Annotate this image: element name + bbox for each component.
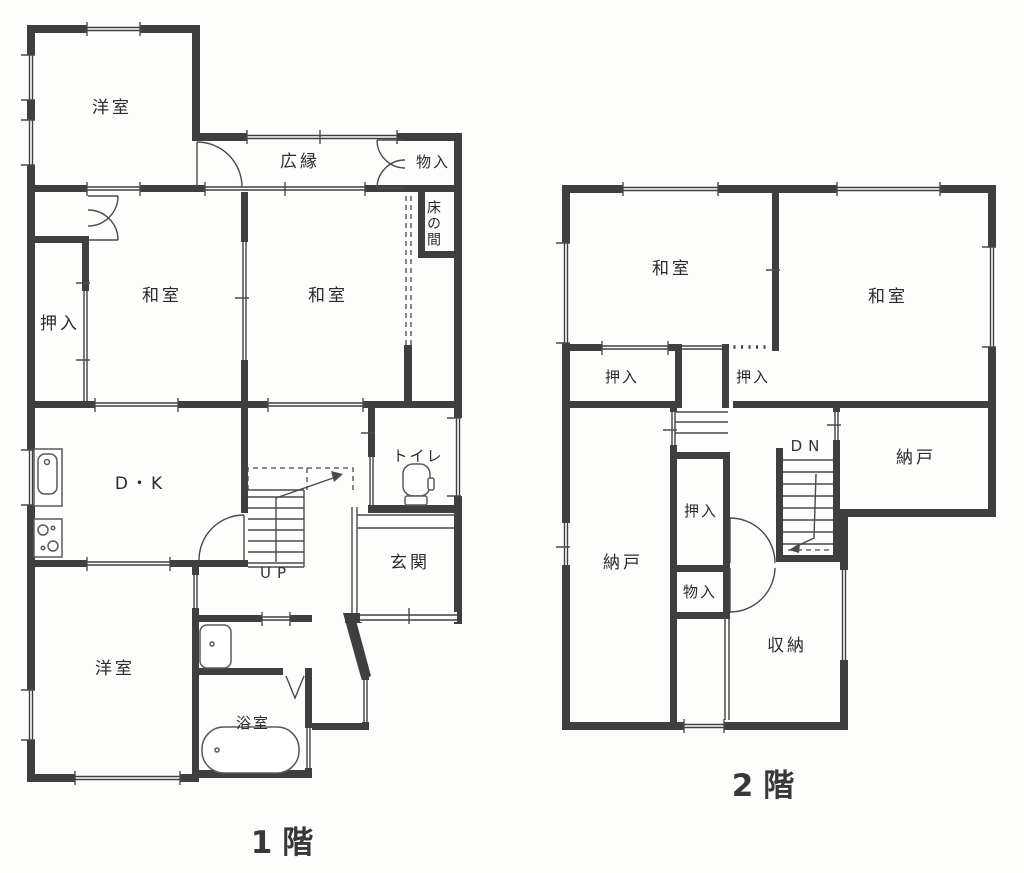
landing-steps — [675, 412, 728, 433]
label-yoshitsu-sw: 洋室 — [95, 659, 135, 679]
label-dk: D・K — [115, 474, 165, 494]
label-bathroom: 浴室 — [236, 714, 270, 732]
stairs-up-arrowhead — [331, 471, 343, 482]
door-arcs-monoire — [377, 140, 405, 188]
toilet-fixture — [403, 464, 434, 505]
label-hiroen: 広縁 — [280, 152, 320, 172]
door-arcs-oshiire — [88, 196, 118, 240]
door-arcs-shuno — [730, 518, 775, 612]
floor1-plan: 洋室 広縁 物入 床の間 押入 和室 和室 D・K トイレ 玄関 UP 洋室 浴… — [21, 22, 462, 861]
floor-plan-page: 洋室 広縁 物入 床の間 押入 和室 和室 D・K トイレ 玄関 UP 洋室 浴… — [0, 0, 1024, 873]
label-genkan: 玄関 — [390, 553, 430, 573]
label-nando-w: 納戸 — [603, 553, 643, 573]
label-washitsu-e-1f: 和室 — [308, 286, 348, 306]
label-yoshitsu-nw: 洋室 — [92, 98, 132, 118]
label-oshiire-w-2f: 押入 — [605, 368, 639, 386]
label-washitsu-w-1f: 和室 — [142, 286, 182, 306]
floor2-stairs — [675, 412, 833, 553]
label-monoire-1f: 物入 — [416, 153, 450, 171]
label-nando-e: 納戸 — [896, 448, 936, 468]
laundry-pan-symbol — [286, 676, 304, 698]
tokonoma-dashed-boundary — [406, 196, 411, 345]
label-washitsu-e-2f: 和室 — [868, 287, 908, 307]
label-tokonoma: 床の間 — [425, 200, 441, 248]
floor2-title: 2階 — [732, 768, 805, 804]
bathtub-fixture — [202, 727, 299, 773]
label-stairs-up: UP — [260, 564, 292, 582]
floor1-stairs — [248, 468, 353, 567]
door-arc-dk — [199, 515, 244, 560]
label-oshiire-1f: 押入 — [40, 314, 80, 334]
floor2-doors — [730, 518, 775, 612]
kitchen-sink-fixture — [34, 449, 62, 506]
stairs-down-arrow — [795, 474, 816, 547]
floor2-plan: 和室 和室 押入 押入 納戸 DN 押入 納戸 物入 収納 2階 — [556, 182, 996, 804]
floor-plan-drawing: 洋室 広縁 物入 床の間 押入 和室 和室 D・K トイレ 玄関 UP 洋室 浴… — [0, 0, 1024, 873]
label-stairs-dn: DN — [791, 437, 826, 455]
floor1-title: 1階 — [251, 825, 324, 861]
label-oshiire-e-2f: 押入 — [736, 368, 770, 386]
stove-fixture — [34, 519, 62, 557]
washbasin-fixture — [200, 625, 231, 668]
label-toilet: トイレ — [392, 447, 443, 465]
label-washitsu-w-2f: 和室 — [652, 259, 692, 279]
label-monoire-2f: 物入 — [683, 583, 717, 601]
label-oshiire-c-2f: 押入 — [684, 502, 718, 520]
label-shuno: 収納 — [767, 636, 807, 656]
door-arc-yoshitsu-hiroen — [197, 142, 242, 187]
